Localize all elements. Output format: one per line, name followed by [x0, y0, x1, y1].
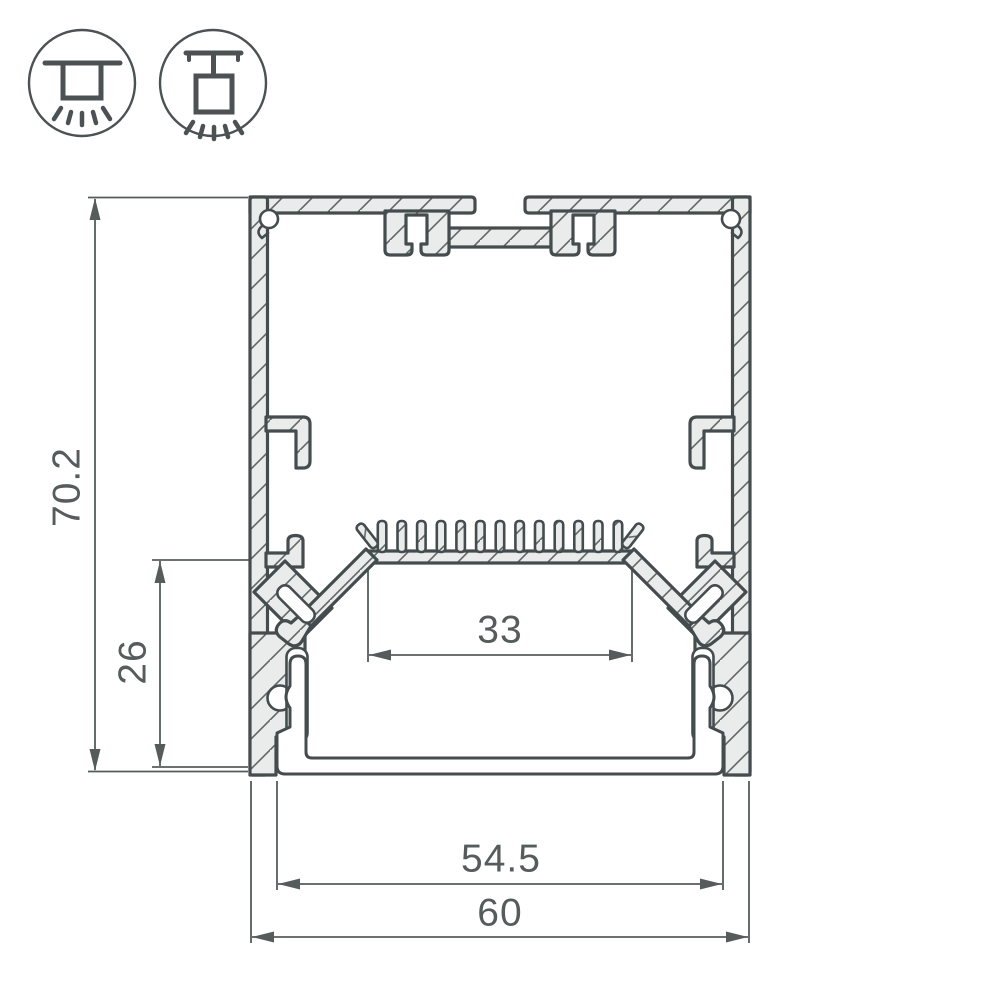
- side-hook-upper-left: [266, 417, 310, 468]
- heatsink-fins: [355, 521, 645, 552]
- profile-center-bridge: [449, 228, 551, 247]
- profile-top-wall: [250, 197, 750, 247]
- label-total-height: 70.2: [48, 447, 87, 527]
- surface-mount-icon: [29, 30, 135, 136]
- profile-cutouts: [259, 210, 742, 742]
- label-diffuser-width: 54.5: [461, 840, 541, 879]
- label-lower-inner-height: 26: [114, 639, 153, 684]
- label-total-width: 60: [477, 894, 522, 933]
- mounting-options: [29, 30, 266, 139]
- light-rays: [54, 108, 110, 125]
- light-rays: [186, 122, 242, 139]
- profile-cross-section: [250, 197, 750, 775]
- dimension-total-height: [88, 198, 248, 772]
- side-hook-upper-right: [690, 417, 734, 468]
- diffuser: [277, 656, 723, 774]
- technical-drawing: 70.2 26 33 54.5 60: [0, 0, 1000, 1000]
- label-led-shelf-width: 33: [477, 611, 522, 650]
- pendant-mount-icon: [160, 30, 266, 139]
